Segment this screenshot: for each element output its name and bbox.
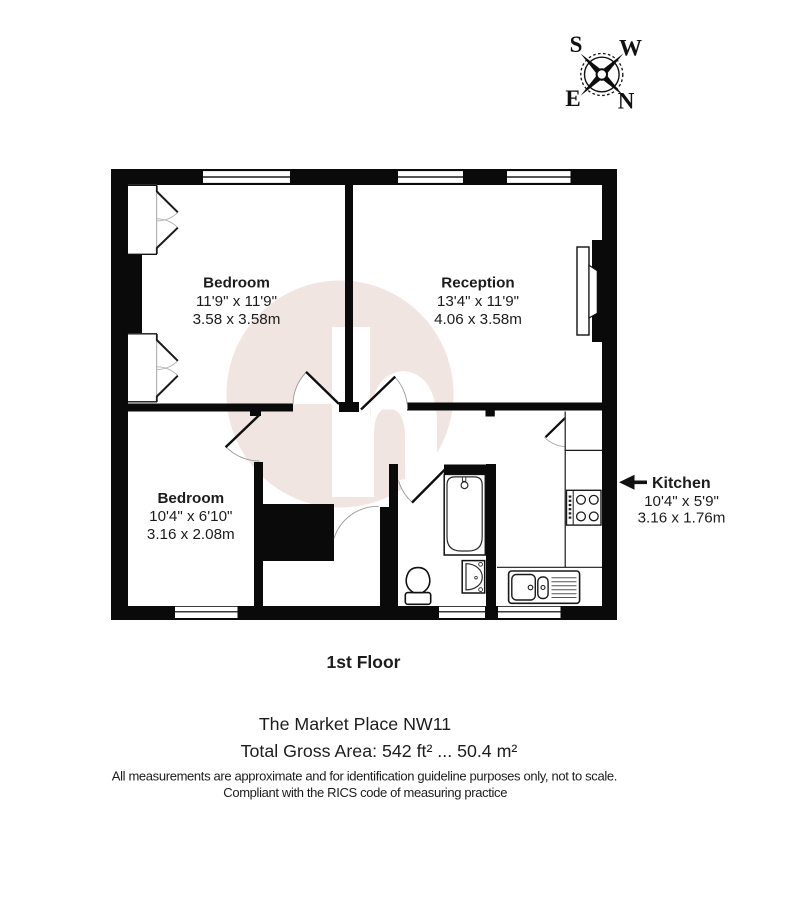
svg-text:10'4" x 5'9": 10'4" x 5'9" bbox=[644, 493, 719, 510]
svg-text:N: N bbox=[618, 89, 635, 114]
svg-text:3.16 x 1.76m: 3.16 x 1.76m bbox=[638, 510, 726, 527]
svg-text:3.58 x 3.58m: 3.58 x 3.58m bbox=[193, 311, 281, 328]
svg-text:Compliant with the RICS code o: Compliant with the RICS code of measurin… bbox=[223, 785, 507, 800]
svg-text:Bedroom: Bedroom bbox=[157, 490, 224, 507]
svg-text:E: E bbox=[565, 86, 580, 111]
svg-text:Kitchen: Kitchen bbox=[652, 475, 711, 492]
svg-text:13'4" x 11'9": 13'4" x 11'9" bbox=[437, 293, 519, 310]
svg-text:All measurements are approxima: All measurements are approximate and for… bbox=[112, 769, 617, 784]
svg-text:10'4" x 6'10": 10'4" x 6'10" bbox=[149, 508, 232, 525]
svg-text:Bedroom: Bedroom bbox=[203, 275, 270, 292]
svg-text:S: S bbox=[570, 32, 583, 57]
svg-text:11'9" x 11'9": 11'9" x 11'9" bbox=[196, 293, 277, 310]
svg-text:3.16 x 2.08m: 3.16 x 2.08m bbox=[147, 526, 235, 543]
svg-text:Total Gross Area: 542 ft² ...: Total Gross Area: 542 ft² ... 50.4 m² bbox=[241, 741, 518, 761]
svg-text:4.06 x 3.58m: 4.06 x 3.58m bbox=[434, 311, 522, 328]
svg-text:Reception: Reception bbox=[441, 275, 514, 292]
svg-text:1st Floor: 1st Floor bbox=[327, 652, 401, 672]
svg-text:The Market Place NW11: The Market Place NW11 bbox=[259, 714, 451, 734]
svg-text:W: W bbox=[619, 36, 642, 61]
